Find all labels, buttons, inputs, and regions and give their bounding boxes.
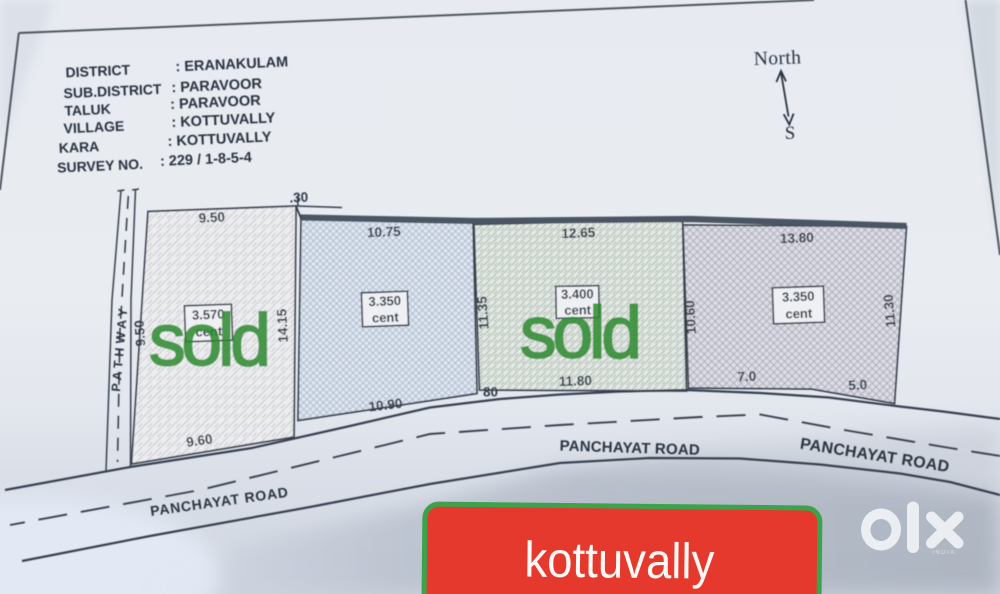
svg-text:INDIA: INDIA: [932, 550, 956, 556]
svg-text:.30: .30: [289, 190, 309, 206]
svg-text:11.30: 11.30: [881, 294, 899, 328]
svg-text:S: S: [785, 123, 796, 144]
svg-text:DISTRICT: DISTRICT: [65, 61, 131, 80]
svg-text:5.0: 5.0: [848, 377, 868, 393]
svg-text:14.15: 14.15: [274, 308, 291, 343]
svg-text:13.80: 13.80: [780, 230, 814, 246]
svg-text:KARA: KARA: [58, 138, 99, 156]
svg-text:3.350: 3.350: [368, 293, 401, 309]
svg-text:7.0: 7.0: [737, 369, 756, 385]
svg-text:10.60: 10.60: [682, 300, 699, 335]
svg-text:sold: sold: [149, 300, 267, 381]
svg-text:cent: cent: [785, 306, 813, 322]
svg-text:3.350: 3.350: [782, 288, 815, 304]
svg-text:North: North: [753, 47, 801, 70]
svg-text:sold: sold: [520, 293, 638, 374]
svg-text:11.35: 11.35: [474, 295, 491, 329]
svg-text:9.50: 9.50: [132, 320, 149, 347]
svg-text:cent: cent: [372, 310, 400, 326]
svg-text:kottuvally: kottuvally: [524, 532, 715, 590]
svg-text:12.65: 12.65: [561, 225, 596, 241]
svg-text:VILLAGE: VILLAGE: [63, 118, 124, 137]
svg-text:TALUK: TALUK: [64, 101, 111, 119]
svg-text:80: 80: [483, 385, 498, 400]
svg-text:10.75: 10.75: [367, 224, 402, 240]
svg-text:11.80: 11.80: [559, 373, 593, 389]
svg-text:9.50: 9.50: [198, 209, 225, 225]
